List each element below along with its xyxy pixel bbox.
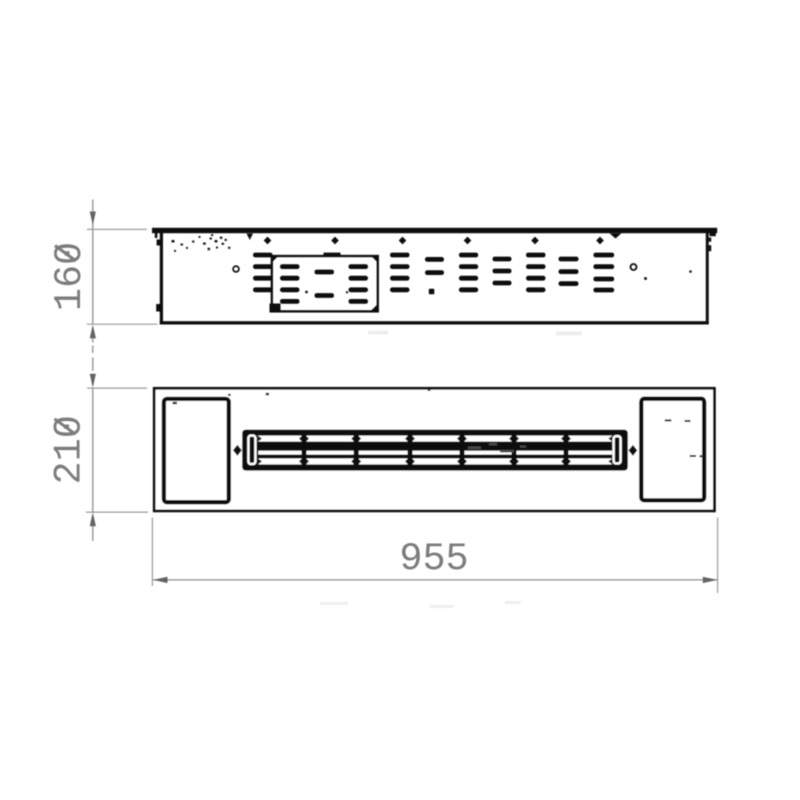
- svg-text:160: 160: [48, 242, 92, 311]
- svg-text:955: 955: [399, 537, 468, 581]
- svg-text:210: 210: [47, 415, 91, 484]
